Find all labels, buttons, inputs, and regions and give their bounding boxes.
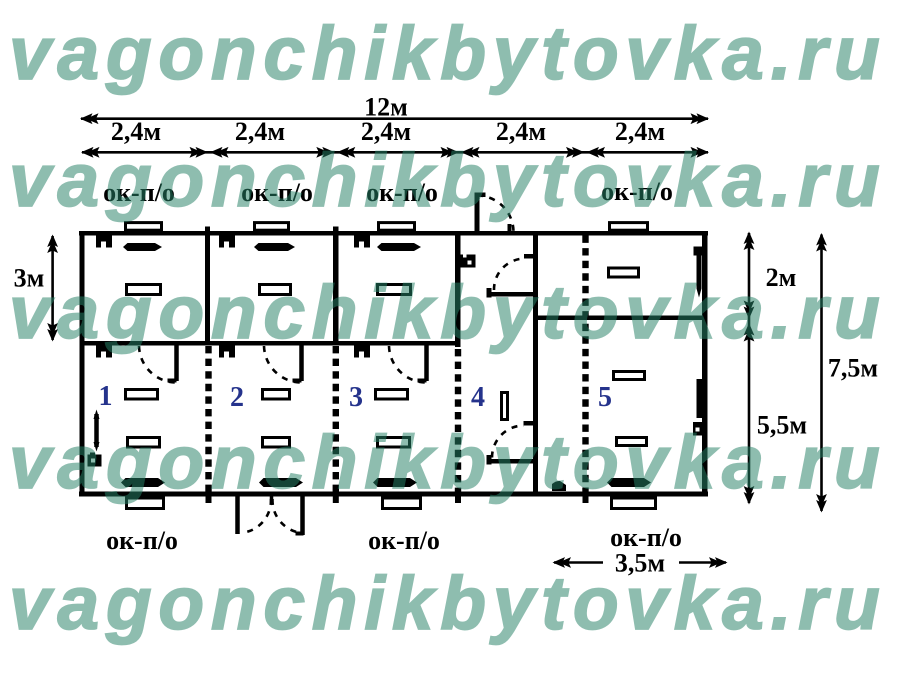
svg-text:5: 5 — [598, 382, 612, 413]
svg-text:ок-п/о: ок-п/о — [368, 526, 440, 555]
svg-text:1: 1 — [99, 381, 113, 412]
svg-text:vagonchikbytovka.ru: vagonchikbytovka.ru — [9, 11, 887, 95]
svg-text:ок-п/о: ок-п/о — [106, 526, 178, 555]
svg-text:vagonchikbytovka.ru: vagonchikbytovka.ru — [9, 420, 887, 504]
svg-text:vagonchikbytovka.ru: vagonchikbytovka.ru — [9, 270, 887, 354]
svg-text:vagonchikbytovka.ru: vagonchikbytovka.ru — [9, 138, 887, 222]
svg-text:4: 4 — [471, 382, 485, 413]
svg-text:7,5м: 7,5м — [828, 354, 878, 383]
svg-text:3: 3 — [349, 382, 363, 413]
svg-text:vagonchikbytovka.ru: vagonchikbytovka.ru — [9, 561, 887, 645]
svg-text:2: 2 — [230, 382, 244, 413]
